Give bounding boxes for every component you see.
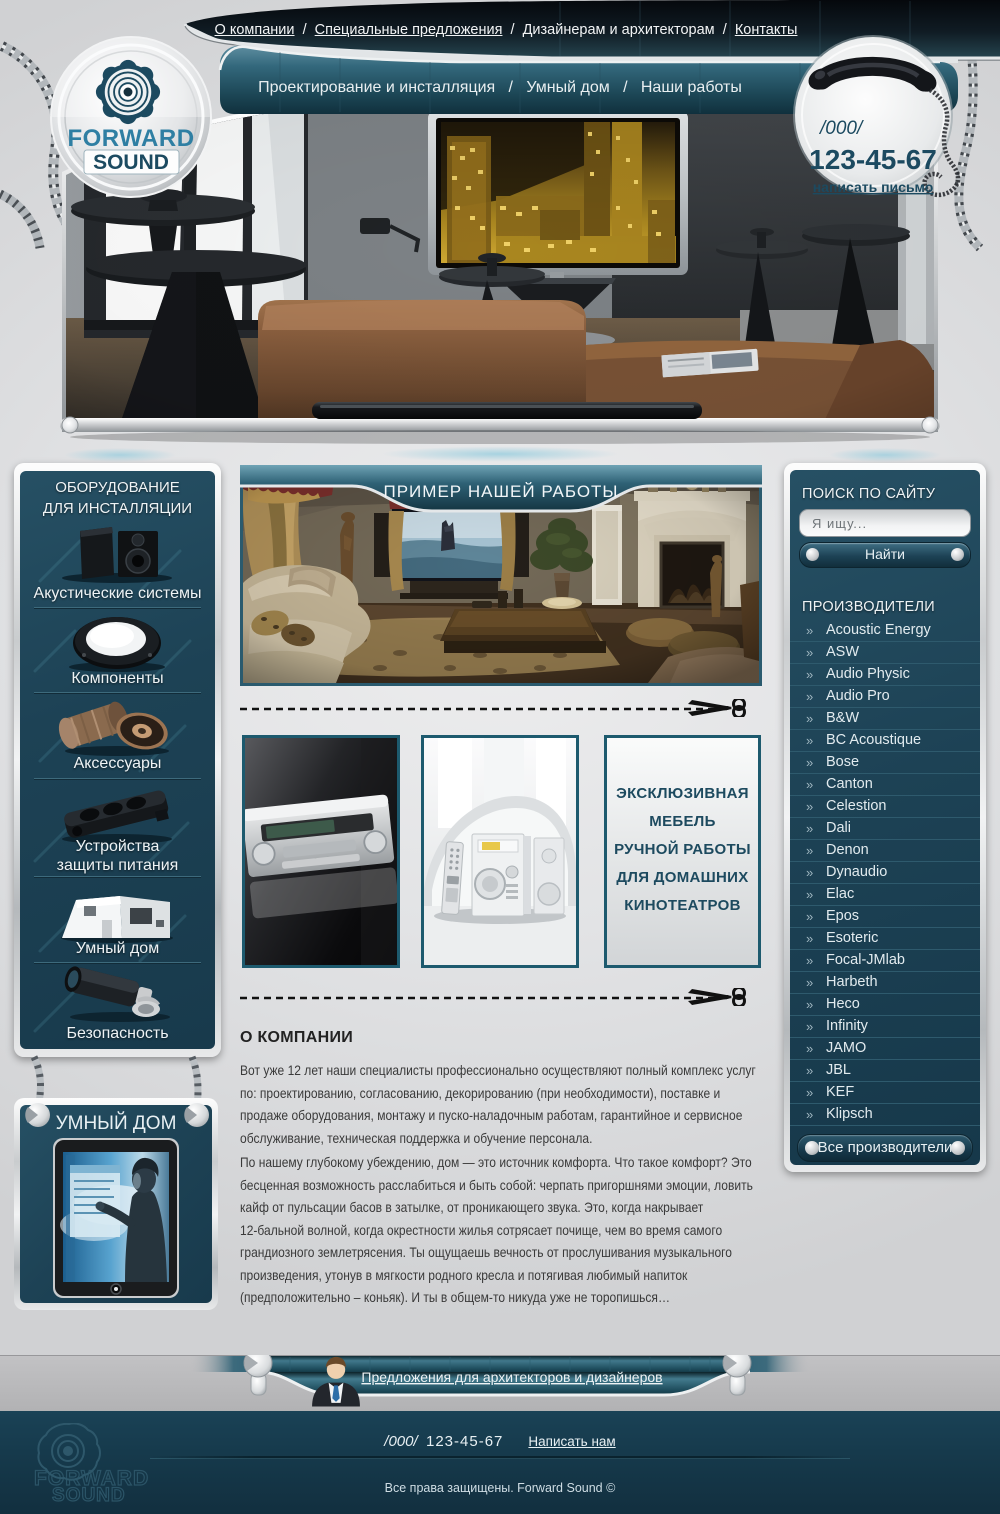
svg-text:написать письмо: написать письмо: [813, 179, 934, 195]
svg-text:ПРИМЕР НАШЕЙ РАБОТЫ: ПРИМЕР НАШЕЙ РАБОТЫ: [384, 482, 619, 501]
svg-text:FORWARD: FORWARD: [67, 125, 194, 152]
svg-text:123-45-67: 123-45-67: [809, 144, 937, 175]
svg-text:Предложения для архитекторов и: Предложения для архитекторов и дизайнеро…: [361, 1369, 662, 1385]
svg-text:SOUND: SOUND: [93, 151, 169, 174]
svg-text:/000/: /000/: [818, 118, 864, 139]
svg-text:УМНЫЙ ДОМ: УМНЫЙ ДОМ: [56, 1112, 177, 1134]
